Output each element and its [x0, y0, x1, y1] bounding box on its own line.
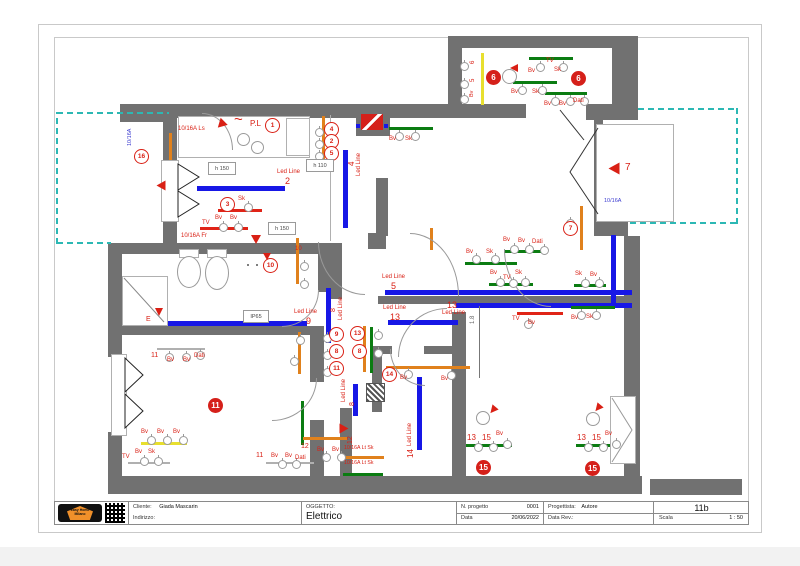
- wall: [368, 233, 386, 249]
- plan-label: Bv: [167, 357, 174, 363]
- socket-line: [370, 327, 373, 373]
- note-box: IP65: [243, 310, 269, 323]
- switch-line: [303, 437, 347, 440]
- logo-cell: Easy HomeMilano: [55, 502, 128, 524]
- project-number-cell: N. progetto 0001 Data 20/06/2022: [456, 502, 544, 524]
- plan-label: TV: [512, 316, 520, 322]
- socket-line: [343, 473, 383, 476]
- room-badge: 15: [476, 460, 491, 475]
- plan-label: Bv: [518, 238, 525, 244]
- socket-icon: [592, 311, 601, 320]
- oggetto-label: OGGETTO:: [306, 504, 335, 510]
- socket-icon: [489, 443, 498, 452]
- plan-label: Sk: [515, 270, 522, 276]
- note-box: h 110: [306, 159, 334, 172]
- wall: [310, 326, 324, 382]
- socket-icon: [315, 140, 324, 149]
- socket-icon: [503, 440, 512, 449]
- plan-label: 13: [447, 301, 457, 310]
- socket-icon: [154, 457, 163, 466]
- plan-label: 13: [577, 434, 586, 442]
- plan-label: 11: [256, 452, 263, 459]
- socket-icon: [525, 245, 534, 254]
- plan-label: 9: [306, 317, 311, 326]
- plan-label: Bv: [490, 270, 497, 276]
- plan-label: Led Line: [277, 169, 300, 175]
- plan-label: Bv: [528, 320, 535, 326]
- socket-icon: [234, 223, 243, 232]
- plan-label: E: [146, 316, 151, 323]
- plan-label: Bv: [157, 429, 164, 435]
- plan-label: Dati: [573, 98, 584, 104]
- point-badge: 8: [352, 344, 367, 359]
- led-line: [197, 186, 285, 191]
- plan-label: Sk: [238, 196, 245, 202]
- fixture-ellipse: [586, 412, 600, 426]
- plan-label: Bv: [230, 215, 237, 221]
- plan-label: TV: [546, 58, 554, 64]
- plan-label: Bv: [605, 431, 612, 437]
- lamp-icon: [157, 181, 166, 191]
- plan-label: Bv: [183, 357, 190, 363]
- cliente-label: Cliente:: [133, 504, 152, 510]
- plan-label: Led Line: [294, 309, 317, 315]
- room-badge: 11: [208, 398, 223, 413]
- balcony-line: [56, 112, 58, 244]
- fixture-ellipse: [237, 133, 250, 146]
- sheet-number: 11b: [654, 503, 749, 513]
- socket-icon: [540, 246, 549, 255]
- plan-label: Dati: [295, 455, 306, 461]
- data-label: Data: [461, 515, 473, 521]
- plan-label: 6: [470, 61, 476, 64]
- plan-label: 11: [151, 352, 158, 359]
- scala-label: Scala: [659, 515, 673, 521]
- socket-icon: [595, 279, 604, 288]
- lamp-icon: [609, 163, 620, 175]
- electrical-panel-icon: [361, 114, 383, 130]
- wall: [452, 312, 466, 478]
- guide-line: [266, 462, 314, 464]
- house-logo-icon: Easy HomeMilano: [67, 506, 93, 520]
- switch-line: [296, 238, 299, 284]
- socket-icon: [460, 62, 469, 71]
- plan-label: Bv: [441, 376, 448, 382]
- led-line: [611, 235, 616, 305]
- plan-label: ~: [234, 112, 243, 127]
- point-badge: 3: [220, 197, 235, 212]
- switch-line: [580, 206, 583, 250]
- plan-label: 10/16A Lt Sk: [344, 446, 373, 451]
- point-badge: 8: [329, 344, 344, 359]
- fixture-outline: [286, 118, 310, 156]
- socket-icon: [581, 279, 590, 288]
- plan-label: Bv: [528, 68, 535, 74]
- plan-label: Dati: [532, 239, 543, 245]
- plan-label: 14: [407, 449, 415, 458]
- plan-label: 8: [349, 402, 356, 406]
- scala-value: 1 : 50: [729, 515, 743, 521]
- fixture-ellipse: [251, 141, 264, 154]
- point-badge: 14: [382, 367, 397, 382]
- point-badge: 9: [329, 327, 344, 342]
- note-box: h 150: [208, 162, 236, 175]
- plan-label: Bv: [571, 315, 578, 321]
- socket-icon: [315, 128, 324, 137]
- socket-icon: [292, 460, 301, 469]
- plan-label: Sk: [554, 67, 561, 73]
- plan-label: 5: [391, 282, 396, 291]
- balcony-line: [736, 108, 738, 224]
- plan-label: 13: [467, 434, 476, 442]
- socket-icon: [521, 278, 530, 287]
- balcony-line: [57, 112, 169, 114]
- plan-label: Sk: [405, 136, 412, 142]
- plan-label: Led Line: [356, 153, 362, 176]
- plan-label: Led Line: [407, 423, 413, 446]
- socket-icon: [460, 95, 469, 104]
- lamp-icon: [251, 235, 261, 244]
- balcony-line: [57, 242, 111, 244]
- socket-icon: [300, 280, 309, 289]
- socket-icon: [599, 443, 608, 452]
- balcony-line: [638, 108, 738, 110]
- power-line: [517, 312, 563, 315]
- data-value: 20/06/2022: [511, 515, 539, 521]
- plan-label: 4: [348, 162, 356, 166]
- wall: [594, 220, 628, 236]
- plan-label: Bv: [466, 249, 473, 255]
- plan-label: Sk: [575, 271, 582, 277]
- door-arc: [272, 378, 317, 421]
- wall: [108, 243, 122, 357]
- point-badge: 7: [563, 221, 578, 236]
- plan-label: Bv: [511, 89, 518, 95]
- plan-label: Bv: [135, 449, 142, 455]
- plan-label: 12: [347, 436, 354, 444]
- fixture-ellipse: [476, 411, 490, 425]
- plan-label: Bv: [496, 431, 503, 437]
- socket-icon: [472, 255, 481, 264]
- page: { "title_block": { "cliente_label": "Cli…: [0, 0, 800, 566]
- plan-label: 10/16A Ls: [178, 126, 205, 132]
- plan-label: Bv: [317, 447, 324, 453]
- plan-label: 7: [625, 163, 631, 173]
- plan-label: Bv: [503, 237, 510, 243]
- wall: [163, 218, 177, 246]
- socket-icon: [510, 245, 519, 254]
- note-box: h 150: [268, 222, 296, 235]
- socket-icon: [411, 132, 420, 141]
- plan-label: Dati: [194, 353, 205, 359]
- plan-label: TV: [503, 275, 511, 281]
- panel-terminal-icon: [384, 124, 388, 128]
- door-arc: [410, 233, 459, 296]
- plan-label: Bv: [559, 101, 566, 107]
- fixture-outline: [111, 354, 127, 436]
- plan-label: Bv: [389, 136, 396, 142]
- plan-label: Sk: [532, 89, 539, 95]
- wall: [650, 479, 742, 495]
- sheet-cell: 11b Scala 1 : 50: [653, 502, 749, 524]
- plan-label: Bv: [215, 215, 222, 221]
- socket-icon: [518, 86, 527, 95]
- plan-label: Bv: [285, 453, 292, 459]
- point-badge: 10: [263, 258, 278, 273]
- plan-label: 13: [390, 313, 400, 322]
- light-line: [481, 53, 484, 105]
- indirizzo-label: Indirizzo:: [133, 515, 155, 521]
- room-badge: 15: [585, 461, 600, 476]
- socket-line: [545, 92, 587, 95]
- n-progetto-value: 0001: [527, 504, 539, 510]
- panel-terminal-icon: [356, 124, 360, 128]
- guide-line: [128, 462, 170, 464]
- socket-icon: [460, 80, 469, 89]
- plan-label: TV: [122, 454, 130, 460]
- data-rev-label: Data Rev.:: [548, 515, 578, 521]
- socket-icon: [374, 331, 383, 340]
- socket-icon: [612, 440, 621, 449]
- plan-label: 10/16A Fr: [181, 233, 207, 239]
- plan-label: 12: [301, 443, 309, 450]
- plan-label: P.L: [250, 120, 261, 128]
- plan-label: Bv: [271, 453, 278, 459]
- plan-label: 15: [592, 434, 601, 442]
- lamp-icon: [340, 424, 349, 434]
- plan-label: Bv: [590, 272, 597, 278]
- socket-icon: [374, 349, 383, 358]
- plan-label: Bv: [332, 447, 339, 453]
- floor-plan: 10/16A LsP.L~Led Line2SkTVBvBv10/16A Fr1…: [0, 0, 800, 566]
- plan-label: Led Line: [338, 297, 344, 320]
- progettista-label: Progettista:: [548, 504, 576, 510]
- room-badge: 6: [571, 71, 586, 86]
- plan-label: Bv: [400, 375, 407, 381]
- door-arc: [398, 308, 447, 357]
- client-cell: Cliente: Giada Mascarin Indirizzo:: [128, 502, 302, 524]
- cliente-value: Giada Mascarin: [159, 504, 198, 510]
- socket-icon: [290, 357, 299, 366]
- socket-icon: [577, 311, 586, 320]
- plan-label: Led Line: [383, 305, 406, 311]
- plan-label: 10/16A Lt Sk: [344, 461, 373, 466]
- plan-label: 15: [482, 434, 491, 442]
- plan-label: Led Line: [442, 310, 465, 316]
- designer-cell: Progettista: Autore Data Rev.:: [543, 502, 654, 524]
- dot-icon: [247, 264, 249, 266]
- wall: [448, 36, 624, 48]
- socket-line: [389, 127, 433, 130]
- plan-label: Bv: [141, 429, 148, 435]
- socket-icon: [140, 457, 149, 466]
- socket-icon: [163, 436, 172, 445]
- socket-icon: [322, 453, 331, 462]
- plan-label: Bv: [173, 429, 180, 435]
- qr-code-icon: [105, 503, 125, 523]
- wall: [108, 476, 642, 494]
- plan-label: 2: [285, 177, 290, 186]
- point-badge: 11: [329, 361, 344, 376]
- fixture-ellipse: [177, 256, 201, 288]
- balcony-line: [630, 222, 738, 224]
- socket-icon: [538, 86, 547, 95]
- point-badge: 13: [350, 326, 365, 341]
- title-block: Easy HomeMilano Cliente: Giada Mascarin …: [54, 501, 749, 525]
- lamp-icon: [155, 308, 163, 316]
- fixture-outline: [161, 160, 179, 222]
- socket-icon: [244, 203, 253, 212]
- wall: [612, 36, 638, 114]
- plan-label: 10: [295, 246, 302, 252]
- n-progetto-label: N. progetto: [461, 504, 488, 510]
- oggetto-value: Elettrico: [306, 511, 342, 522]
- socket-icon: [179, 436, 188, 445]
- socket-icon: [219, 223, 228, 232]
- socket-icon: [491, 255, 500, 264]
- plan-label: 1.8: [470, 316, 476, 324]
- plan-label: 10/16A: [128, 129, 134, 146]
- dimension-line: [479, 306, 480, 378]
- plan-label: 8: [330, 308, 337, 312]
- led-line: [353, 384, 358, 416]
- socket-icon: [278, 460, 287, 469]
- wall: [108, 432, 122, 478]
- progettista-value: Autore: [581, 504, 597, 510]
- guide-line: [157, 348, 205, 350]
- plan-label: TV: [202, 220, 210, 226]
- plan-label: 10/16A: [604, 199, 621, 205]
- switch-line: [340, 456, 384, 459]
- socket-icon: [474, 443, 483, 452]
- lamp-icon: [510, 64, 518, 72]
- room-badge: 6: [486, 70, 501, 85]
- wall: [122, 326, 322, 335]
- point-badge: 1: [265, 118, 280, 133]
- socket-line: [513, 81, 557, 84]
- plan-label: Sk: [586, 314, 593, 320]
- socket-line: [571, 306, 615, 309]
- point-badge: 16: [134, 149, 149, 164]
- socket-icon: [584, 443, 593, 452]
- plan-label: Sk: [148, 449, 155, 455]
- dot-icon: [256, 264, 258, 266]
- plan-label: Led Line: [341, 379, 347, 402]
- shaft-hatch: [366, 383, 385, 402]
- socket-icon: [296, 336, 305, 345]
- plan-label: Sk: [486, 249, 493, 255]
- socket-icon: [300, 262, 309, 271]
- plan-label: 5: [470, 79, 476, 82]
- socket-icon: [147, 436, 156, 445]
- wall: [376, 178, 388, 236]
- company-logo: Easy HomeMilano: [58, 504, 102, 522]
- fixture-outline: [610, 396, 636, 464]
- plan-label: Bv: [470, 91, 476, 97]
- led-line: [417, 377, 422, 450]
- socket-icon: [536, 63, 545, 72]
- socket-icon: [395, 132, 404, 141]
- socket-icon: [447, 371, 456, 380]
- plan-label: Bv: [544, 101, 551, 107]
- fixture-outline: [122, 276, 168, 326]
- oggetto-cell: OGGETTO: Elettrico: [301, 502, 457, 524]
- fixture-ellipse: [205, 256, 229, 290]
- plan-label: Led Line: [382, 274, 405, 280]
